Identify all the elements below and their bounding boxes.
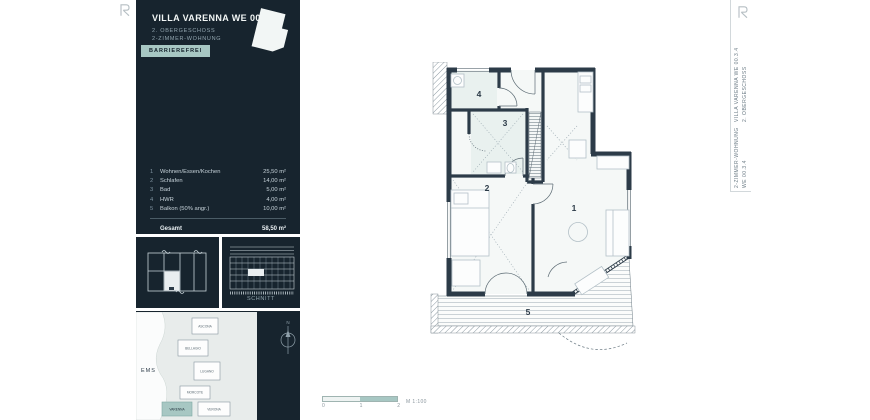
tick-1: 1: [360, 403, 363, 409]
room-label: Balkon (50% angr.): [160, 206, 263, 212]
room-area: 5,00 m²: [266, 187, 286, 193]
table-row: 1 Wohnen/Essen/Kochen 25,50 m²: [150, 167, 286, 176]
section-caption: Schnitt: [222, 296, 300, 302]
building-label: VERONA: [207, 408, 221, 412]
building-label: ASCONA: [198, 325, 212, 329]
floorplan-sheet: VILLA VARENNA WE 00.3.4 2. OBERGESCHOSS …: [0, 0, 870, 420]
tick-2: 2: [397, 403, 400, 409]
room-area: 14,00 m²: [263, 178, 286, 184]
total-area: 58,50 m²: [262, 226, 286, 232]
compass-icon: N: [281, 320, 295, 354]
tick-0: 0: [322, 403, 325, 409]
subtitle-floor: 2. OBERGESCHOSS: [152, 28, 215, 34]
room-number: 2: [150, 178, 160, 184]
table-row: 3 Bad 5,00 m²: [150, 186, 286, 195]
titleblock-unit: 2-ZIMMER-WOHNUNG WE 00.3.4: [733, 124, 749, 188]
titleblock-project: VILLA VARENNA WE 00.3.4 2. OBERGESCHOSS: [733, 42, 749, 122]
compass-n: N: [286, 320, 289, 325]
room-number: 4: [150, 197, 160, 203]
key-plan-thumbnail: [136, 237, 219, 313]
awning-outline: [559, 333, 627, 350]
scale-label: M 1:100: [406, 399, 427, 405]
table-row: 4 HWR 4,00 m²: [150, 195, 286, 204]
section-thumbnail: [222, 237, 300, 300]
feature-badge: BARRIEREFREI: [141, 45, 210, 57]
room-area: 10,00 m²: [263, 206, 286, 212]
brand-logo-icon: [736, 4, 750, 20]
river-label: EMS: [141, 368, 156, 374]
building-label: VARENNA: [169, 408, 185, 412]
table-row: 5 Balkon (50% angr.) 10,00 m²: [150, 205, 286, 214]
titleblock-tick: [730, 191, 751, 192]
site-plan: EMS ASCONA BELLAGIO LUGANO MORCOTE VAREN…: [136, 312, 300, 420]
room-number: 5: [150, 206, 160, 212]
room-label: Wohnen/Essen/Kochen: [160, 169, 263, 175]
table-total-row: Gesamt 58,50 m²: [150, 224, 286, 233]
room-label: Schlafen: [160, 178, 263, 184]
titleblock-line: 2. OBERGESCHOSS: [741, 42, 749, 122]
room-area: 25,50 m²: [263, 169, 286, 175]
room-number: 3: [150, 187, 160, 193]
building-label: BELLAGIO: [185, 347, 201, 351]
scale-segment: [360, 397, 397, 401]
building-label: LUGANO: [200, 370, 214, 374]
scale-bar-graphic: [322, 396, 398, 402]
floor-plan-drawing: 1 2 3 4 5: [427, 62, 639, 367]
panel-gap: [136, 308, 300, 311]
room-number-1: 1: [572, 203, 577, 213]
building-label: MORCOTE: [187, 391, 203, 395]
table-row: 2 Schlafen 14,00 m²: [150, 176, 286, 185]
titleblock-divider: [730, 0, 731, 192]
room-number-3: 3: [503, 118, 508, 128]
scale-segment: [323, 397, 360, 401]
subtitle-type: 2-ZIMMER-WOHNUNG: [152, 36, 221, 42]
info-sidebar: VILLA VARENNA WE 00.3.4 2. OBERGESCHOSS …: [136, 0, 300, 420]
scale-ticks: 0 1 2: [322, 403, 400, 409]
room-label: Bad: [160, 187, 266, 193]
room-area: 4,00 m²: [266, 197, 286, 203]
scale-bar: 0 1 2 M 1:100: [322, 396, 462, 409]
neighbor-wall-hatch: [433, 62, 447, 114]
room-number: 1: [150, 169, 160, 175]
room-number-4: 4: [477, 89, 482, 99]
brand-logo-icon: [118, 2, 132, 18]
room-number-5: 5: [526, 307, 531, 317]
table-divider: [150, 218, 286, 219]
titleblock-line: VILLA VARENNA WE 00.3.4: [733, 42, 741, 122]
titleblock-line: 2-ZIMMER-WOHNUNG: [733, 124, 741, 188]
room-label: HWR: [160, 197, 266, 203]
total-label: Gesamt: [160, 226, 262, 232]
room-number-2: 2: [485, 183, 490, 193]
unit-silhouette-icon: [248, 8, 292, 65]
room-area-table: 1 Wohnen/Essen/Kochen 25,50 m² 2 Schlafe…: [150, 167, 286, 233]
titleblock-line: WE 00.3.4: [741, 124, 749, 188]
